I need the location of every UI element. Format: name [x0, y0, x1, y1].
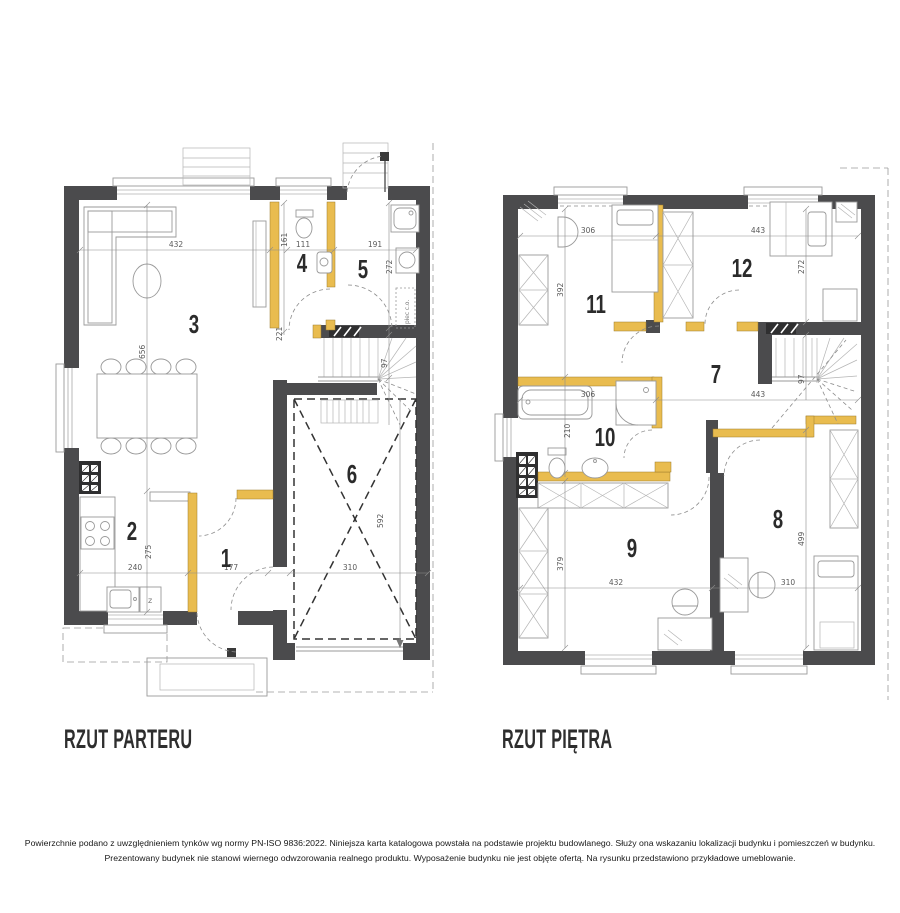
toilet-icon	[296, 210, 313, 238]
room-5: 5	[358, 254, 368, 284]
chimney-shaft-upper-icon	[516, 452, 538, 498]
room-6: 6	[347, 459, 357, 489]
dim-432: 432	[169, 240, 184, 249]
dim-432b: 432	[609, 578, 624, 587]
room-12: 12	[732, 253, 753, 283]
dim-656: 656	[138, 344, 147, 359]
bedroom-12-furniture	[663, 202, 857, 321]
room-7: 7	[711, 359, 721, 389]
dim-275: 275	[144, 544, 153, 559]
room-4: 4	[297, 248, 308, 278]
upper-floor-plan: 306 443 392 272 306 443 210 97 379 432 3…	[495, 168, 888, 700]
dim-191: 191	[368, 240, 383, 249]
dim-97: 97	[380, 358, 389, 368]
furnace: piec c.o.	[396, 288, 415, 328]
disclaimer-line-1: Powierzchnie podano z uwzględnieniem tyn…	[0, 836, 900, 851]
garage-area	[294, 399, 416, 651]
dim-272: 272	[385, 259, 394, 274]
dim-592: 592	[376, 513, 385, 528]
room-11: 11	[586, 289, 606, 319]
dim-161: 161	[280, 232, 289, 247]
dim-379: 379	[556, 556, 565, 571]
dim-210: 210	[563, 423, 572, 438]
dim-443b: 443	[751, 390, 766, 399]
shower-icon	[391, 205, 419, 232]
dim-392: 392	[556, 282, 565, 297]
room-2: 2	[127, 516, 137, 546]
dim-272b: 272	[797, 259, 806, 274]
dim-443a: 443	[751, 226, 766, 235]
dim-306a: 306	[581, 226, 596, 235]
room-8: 8	[773, 504, 783, 534]
bedroom-9-furniture	[519, 483, 712, 650]
washbasin-icon	[317, 252, 332, 273]
dim-310b: 310	[781, 578, 796, 587]
room-10: 10	[595, 422, 616, 452]
dim-240: 240	[128, 563, 143, 572]
furnace-label: piec c.o.	[405, 300, 411, 324]
disclaimer-line-2: Prezentowany budynek nie stanowi wierneg…	[0, 851, 900, 866]
ground-floor-title: RZUT PARTERU	[64, 724, 192, 755]
room-9: 9	[627, 533, 637, 563]
room-1: 1	[221, 543, 231, 573]
upper-floor-title: RZUT PIĘTRA	[502, 724, 612, 755]
dim-221: 221	[275, 326, 284, 341]
ground-floor-plan: z piec c.o.	[56, 143, 433, 696]
bedroom-8-furniture	[720, 430, 858, 650]
dim-310: 310	[343, 563, 358, 572]
washing-machine-icon	[396, 248, 419, 273]
chimney-shaft-icon	[79, 461, 101, 494]
catalog-card: z piec c.o.	[0, 0, 900, 913]
sideboard	[253, 221, 266, 307]
wall-above-marker-upper	[766, 323, 798, 334]
dim-306b: 306	[581, 390, 596, 399]
disclaimer: Powierzchnie podano z uwzględnieniem tyn…	[0, 836, 900, 866]
floor-plans-drawing: z piec c.o.	[0, 0, 900, 700]
dim-97b: 97	[797, 374, 806, 384]
dim-499: 499	[797, 531, 806, 546]
sofa	[84, 207, 176, 325]
staircase-upper	[772, 338, 857, 428]
room-3: 3	[189, 309, 199, 339]
dishwasher-label: z	[148, 596, 152, 605]
side-entry	[343, 143, 389, 192]
